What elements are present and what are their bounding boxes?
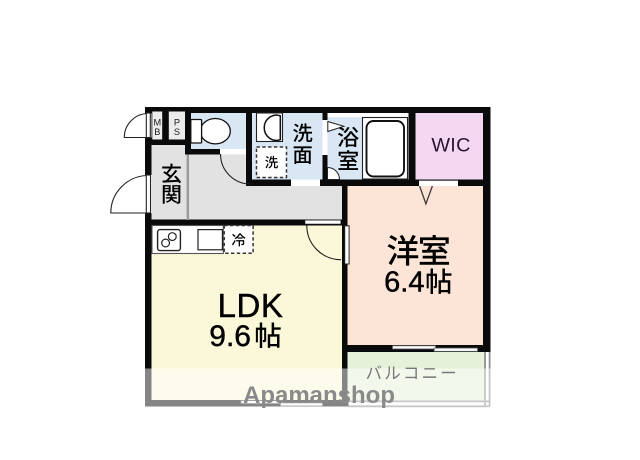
svg-text:LDK: LDK [218, 287, 284, 324]
svg-text:M: M [153, 118, 161, 128]
svg-text:9.6: 9.6 [209, 320, 251, 353]
svg-text:Apamanshop: Apamanshop [243, 382, 395, 409]
svg-text:B: B [154, 127, 160, 137]
svg-text:P: P [174, 118, 180, 128]
svg-text:6.4: 6.4 [384, 267, 424, 299]
svg-text:S: S [174, 127, 180, 137]
svg-text:WIC: WIC [431, 135, 470, 157]
